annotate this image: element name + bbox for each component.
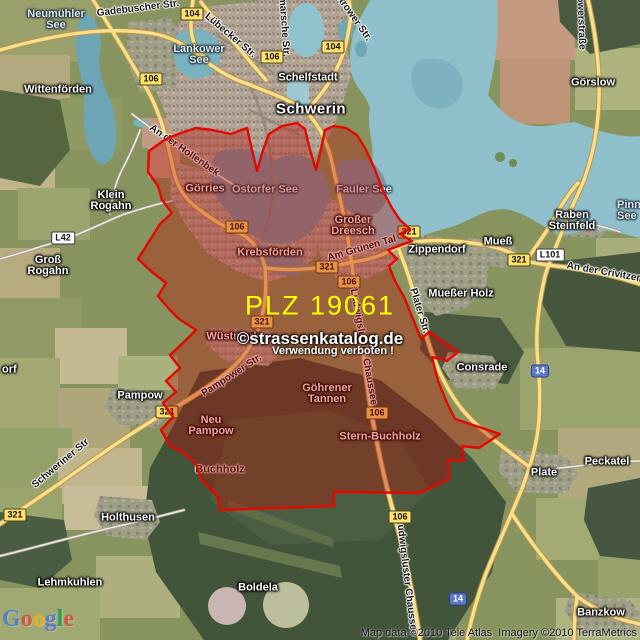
google-logo-letter: g: [45, 606, 57, 632]
google-logo[interactable]: Google: [2, 606, 74, 633]
warning-watermark: Verwendung verboten !: [272, 345, 394, 357]
map-attribution: Map data ©2010 Tele Atlas Imagery ©2010 …: [361, 627, 637, 639]
google-logo-letter: e: [63, 606, 74, 632]
google-logo-letter: o: [33, 606, 45, 632]
map-viewport[interactable]: WittenfördenSchelfstadtSchwerinGörslowKl…: [0, 0, 640, 640]
plz-watermark: PLZ 19061: [245, 291, 395, 322]
google-logo-letter: G: [2, 606, 21, 632]
google-logo-letter: o: [21, 606, 33, 632]
